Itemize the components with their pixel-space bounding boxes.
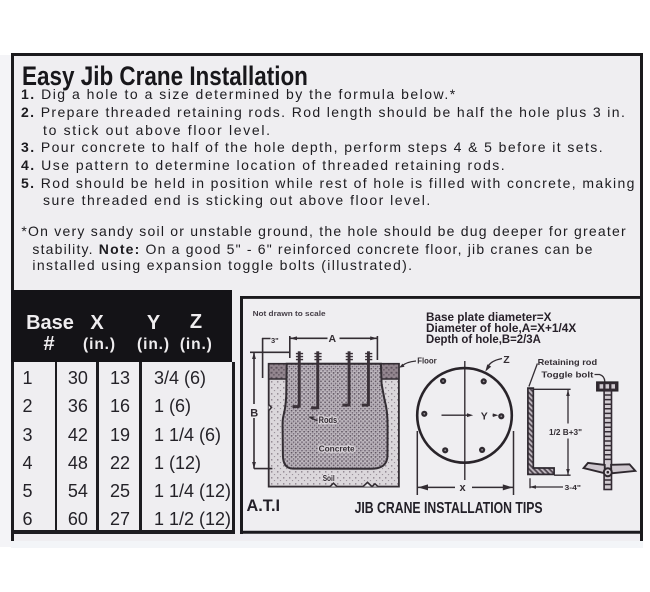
svg-text:B: B — [250, 408, 258, 420]
svg-text:Retaining rod: Retaining rod — [537, 357, 597, 367]
svg-text:Soil: Soil — [322, 473, 334, 483]
svg-text:Not drawn to scale: Not drawn to scale — [252, 309, 325, 318]
svg-text:3": 3" — [271, 336, 279, 345]
svg-text:Depth of hole,B=2/3A: Depth of hole,B=2/3A — [426, 332, 541, 346]
svg-text:1/2 B+3": 1/2 B+3" — [549, 427, 582, 437]
svg-text:x: x — [459, 482, 466, 494]
svg-text:A.T.I: A.T.I — [246, 496, 280, 515]
svg-text:Y: Y — [480, 411, 487, 423]
svg-text:Z: Z — [503, 354, 510, 366]
svg-text:A: A — [328, 333, 336, 345]
svg-text:JIB CRANE INSTALLATION TIPS: JIB CRANE INSTALLATION TIPS — [354, 500, 542, 517]
svg-text:Rods: Rods — [318, 415, 337, 425]
svg-text:Toggle bolt: Toggle bolt — [541, 369, 593, 379]
svg-text:Concrete: Concrete — [318, 444, 354, 454]
svg-text:Floor: Floor — [417, 356, 437, 366]
svg-text:3-4": 3-4" — [564, 483, 581, 492]
